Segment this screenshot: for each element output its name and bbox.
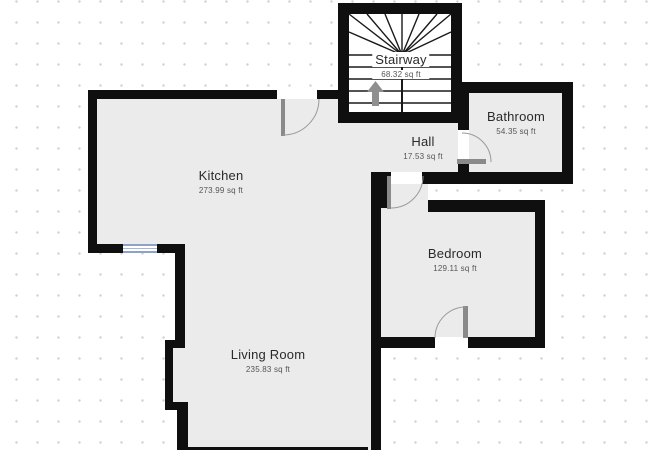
door-leaf-kitchen-entry bbox=[281, 99, 285, 136]
room-area: 17.53 sq ft bbox=[403, 152, 443, 161]
room-label-living-room: Living Room 235.83 sq ft bbox=[231, 347, 305, 374]
room-area: 273.99 sq ft bbox=[199, 186, 244, 195]
room-area: 68.32 sq ft bbox=[372, 70, 429, 79]
room-label-bathroom: Bathroom 54.35 sq ft bbox=[487, 109, 545, 136]
room-name: Hall bbox=[403, 134, 443, 149]
room-name: Stairway bbox=[372, 52, 429, 67]
door-arc-bathroom bbox=[462, 133, 491, 162]
room-label-stairway: Stairway 68.32 sq ft bbox=[372, 52, 429, 79]
door-arc-kitchen-entry bbox=[283, 99, 319, 135]
room-label-kitchen: Kitchen 273.99 sq ft bbox=[199, 168, 244, 195]
floor-plan: Stairway 68.32 sq ft Hall 17.53 sq ft Ba… bbox=[0, 0, 650, 450]
room-area: 235.83 sq ft bbox=[231, 365, 305, 374]
door-arc-bedroom-living bbox=[435, 307, 466, 338]
door-arc-hall-bedroom bbox=[391, 176, 423, 208]
room-label-hall: Hall 17.53 sq ft bbox=[403, 134, 443, 161]
door-arcs bbox=[283, 99, 491, 338]
room-name: Living Room bbox=[231, 347, 305, 362]
door-leaves bbox=[281, 99, 486, 338]
room-label-bedroom: Bedroom 129.11 sq ft bbox=[428, 246, 482, 273]
room-name: Bedroom bbox=[428, 246, 482, 261]
room-area: 54.35 sq ft bbox=[487, 127, 545, 136]
door-leaf-bathroom bbox=[457, 159, 486, 164]
door-leaf-hall-bedroom bbox=[387, 176, 391, 209]
up-arrow-icon bbox=[367, 81, 384, 106]
room-name: Bathroom bbox=[487, 109, 545, 124]
door-leaf-bedroom-living bbox=[463, 306, 468, 338]
room-name: Kitchen bbox=[199, 168, 244, 183]
plan-overlay bbox=[0, 0, 650, 450]
room-area: 129.11 sq ft bbox=[428, 264, 482, 273]
